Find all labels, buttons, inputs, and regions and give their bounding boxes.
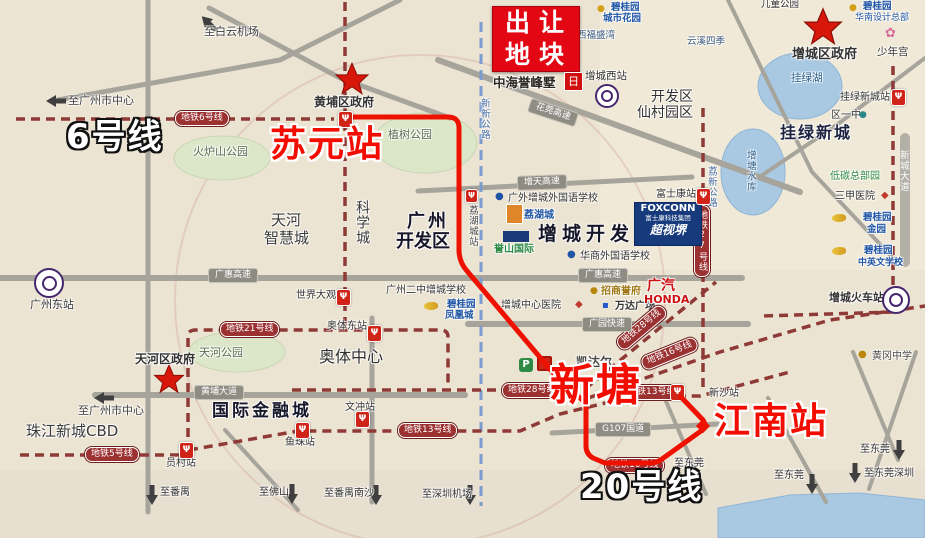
guangyuan-expwy-badge: 广园快速 bbox=[582, 317, 632, 332]
map-base-layer bbox=[0, 0, 925, 538]
dir-sz-airport: 至深圳机场 bbox=[422, 489, 472, 501]
bgy-design-label2: 华南设计总部 bbox=[855, 13, 909, 23]
xinxin-road-label: 新新公路 bbox=[478, 98, 489, 140]
bgy-design-label1: 碧桂园 bbox=[863, 2, 892, 13]
low-carbon-hq-label: 低碳总部园 bbox=[830, 171, 880, 183]
district-no1-school-icon: ● bbox=[859, 111, 867, 120]
xiancun-zone-label2: 仙村园区 bbox=[637, 105, 693, 121]
aoti-east-station-icon: Ψ bbox=[367, 325, 382, 342]
zengtang-reservoir-label: 增塘水库 bbox=[744, 150, 755, 192]
metro-line21-badge: 地铁21号线 bbox=[220, 322, 279, 337]
lihucheng-estate-icon bbox=[506, 204, 523, 224]
science-city-label: 科学城 bbox=[354, 200, 370, 245]
huanggang-school-icon: ● bbox=[858, 350, 867, 360]
zhaoshang-icon: ● bbox=[590, 287, 598, 296]
aoti-east-station-label: 奥体东站 bbox=[327, 321, 367, 333]
wanda-icon: ▪ bbox=[602, 301, 609, 311]
yushan-intl-label: 誉山国际 bbox=[494, 244, 534, 256]
dir-panyu-nansha: 至番禺南沙 bbox=[324, 488, 374, 500]
dir-gz-center-2: 至广州市中心 bbox=[78, 405, 144, 418]
xintang-annotation: 新塘 bbox=[550, 364, 642, 408]
guanghui-hwy-east-badge: 广惠高速 bbox=[578, 268, 628, 283]
intl-finance-city-label: 国际金融城 bbox=[212, 402, 312, 422]
tianhe-smart-city-label1: 天河 bbox=[271, 212, 301, 229]
foxconn-sub-label: 富士康科技集团 bbox=[635, 215, 701, 223]
huashang-school-icon: ● bbox=[567, 250, 576, 260]
worlds-fair-station-label: 世界大观 bbox=[296, 290, 336, 302]
youth-palace-label: 少年宫 bbox=[877, 46, 909, 58]
xinsha-station-icon: Ψ bbox=[670, 384, 685, 401]
huanggang-school-label: 黄冈中学 bbox=[872, 351, 912, 363]
tianhe-park-label: 天河公园 bbox=[199, 347, 243, 360]
parcel-brand-label: 中海誉峰墅 bbox=[493, 76, 556, 90]
line6-annotation: 6号线 bbox=[66, 120, 164, 154]
metro-line13-west-badge: 地铁13号线 bbox=[398, 423, 457, 438]
bgy-city-garden-icon: ● bbox=[597, 5, 605, 14]
bgy-jinyuan-label1: 碧桂园 bbox=[863, 213, 892, 224]
gualv-newtown-area-label: 挂绿新城 bbox=[780, 124, 852, 142]
yushan-intl-icon bbox=[503, 231, 529, 242]
gz-east-station-label: 广州东站 bbox=[30, 299, 74, 312]
zhishu-park-label: 植树公园 bbox=[388, 129, 432, 142]
xifu-label: 西福盛湾 bbox=[577, 31, 615, 42]
bgy-school-icon bbox=[832, 247, 846, 255]
bgy-phoenix-icon bbox=[424, 302, 438, 310]
dir-dongguan-2: 至东莞 bbox=[774, 470, 804, 482]
zhishu-park-area bbox=[373, 113, 477, 173]
huangpu-gov-label: 黄埔区政府 bbox=[314, 96, 374, 110]
gwaiw-school-label: 广外增城外国语学校 bbox=[508, 193, 598, 205]
bgy-jinyuan-label2: 金园 bbox=[867, 225, 886, 236]
bgy-design-icon: ● bbox=[849, 4, 857, 13]
zhonghai-logo-icon: 日 bbox=[564, 72, 583, 91]
jiangnan-station-annotation: 江南站 bbox=[714, 404, 828, 440]
dir-gz-center-1: 至广州市中心 bbox=[68, 95, 134, 108]
lihucheng-station-label: 荔湖城站 bbox=[466, 205, 477, 247]
zengcheng-west-station-label: 增城西站 bbox=[585, 70, 627, 82]
huolushan-park-label: 火炉山公园 bbox=[193, 146, 248, 159]
bgy-city-garden-label2: 城市花园 bbox=[603, 14, 641, 25]
gualv-lake-label: 挂绿湖 bbox=[791, 72, 823, 84]
g107-badge: G107国道 bbox=[595, 422, 651, 437]
gz-no2-school-label: 广州二中增城学校 bbox=[386, 285, 466, 297]
dir-dongguan-sz: 至东莞深圳 bbox=[864, 468, 914, 480]
yuzhu-station-icon: Ψ bbox=[295, 422, 310, 439]
yuancun-station-icon: Ψ bbox=[179, 442, 194, 459]
bgy-school-label1: 碧桂园 bbox=[864, 246, 893, 257]
zengcheng-west-station-icon bbox=[595, 84, 619, 108]
bgy-school-label2: 中英文学校 bbox=[858, 258, 903, 268]
zhujiang-cbd-label: 珠江新城CBD bbox=[26, 423, 118, 440]
zhaoshang-label: 招商誉府 bbox=[601, 286, 641, 298]
foxconn-station-icon: Ψ bbox=[696, 188, 711, 205]
zc-hospital-icon: ◆ bbox=[575, 300, 583, 310]
zc-hospital-label: 增城中心医院 bbox=[501, 300, 561, 312]
huangpu-ave-badge: 黄埔大道 bbox=[194, 385, 244, 400]
map-canvas: 地铁6号线 地铁21号线 地铁5号线 地铁13号线 地铁13号线 地铁28号线 … bbox=[0, 0, 925, 538]
foxconn-station-label: 富士康站 bbox=[656, 189, 696, 201]
parcel-line2: 地块 bbox=[499, 39, 579, 71]
gz-devzone-label1: 广州 bbox=[407, 212, 449, 233]
zengcheng-gov-label: 增城区政府 bbox=[792, 48, 857, 63]
lihucheng-estate-label: 荔湖城 bbox=[524, 210, 554, 222]
yunxi-siji-label: 云溪四季 bbox=[687, 37, 725, 48]
dir-panyu: 至番禺 bbox=[160, 487, 190, 499]
youth-palace-icon: ✿ bbox=[885, 27, 896, 40]
dir-foshan: 至佛山 bbox=[259, 487, 289, 499]
gualv-newtown-station-label: 挂绿新城站 bbox=[840, 92, 890, 104]
guanghui-hwy-west-badge: 广惠高速 bbox=[208, 268, 258, 283]
line20-annotation: 20号线 bbox=[580, 470, 703, 504]
yuancun-station-label: 员村站 bbox=[166, 458, 196, 470]
honda-label: HONDA bbox=[644, 294, 689, 307]
bgy-phoenix-label2: 凤凰城 bbox=[445, 311, 474, 322]
metro-line5-badge: 地铁5号线 bbox=[85, 447, 139, 462]
zengcheng-railway-station-label: 增城火车站 bbox=[829, 292, 884, 305]
foxconn-box: FOXCONN 富士康科技集团 超视堺 bbox=[634, 202, 702, 246]
zengcheng-railway-station-icon bbox=[882, 286, 910, 314]
parcel-for-sale-box: 出让 地块 bbox=[492, 6, 580, 72]
dir-baiyun-airport: 至白云机场 bbox=[204, 26, 259, 39]
district-no1-school-label: 区一中 bbox=[831, 110, 861, 122]
sanjia-hospital-label: 三甲医院 bbox=[835, 191, 875, 203]
lihucheng-station-icon: Ψ bbox=[465, 189, 478, 203]
bgy-jinyuan-icon bbox=[832, 214, 846, 222]
wenchong-station-icon: Ψ bbox=[355, 411, 370, 428]
parcel-line1: 出让 bbox=[499, 7, 579, 39]
chaoshijie-label: 超视堺 bbox=[635, 223, 701, 237]
zengtian-hwy-badge: 增天高速 bbox=[517, 174, 568, 191]
gz-east-station-icon bbox=[34, 268, 64, 298]
xiancun-zone-label1: 开发区 bbox=[651, 89, 693, 105]
xinsha-station-label: 新沙站 bbox=[709, 388, 739, 400]
tianhe-gov-label: 天河区政府 bbox=[135, 353, 195, 367]
sanjia-hospital-icon: ◆ bbox=[881, 191, 889, 201]
gwaiw-school-icon: ● bbox=[495, 192, 504, 202]
metro-line6-badge: 地铁6号线 bbox=[175, 111, 229, 126]
gualv-newtown-station-icon: Ψ bbox=[891, 89, 906, 106]
suyuan-station-annotation: 苏元站 bbox=[270, 127, 384, 163]
kaidar-p-icon: P bbox=[519, 358, 533, 372]
xincheng-ave-label: 新城大道 bbox=[897, 150, 908, 192]
dir-dongguan-3: 至东莞 bbox=[860, 444, 890, 456]
tianhe-smart-city-label2: 智慧城 bbox=[264, 230, 309, 247]
worlds-fair-station-icon: Ψ bbox=[336, 289, 351, 306]
children-park-label: 儿童公园 bbox=[761, 0, 799, 11]
aoti-center-label: 奥体中心 bbox=[319, 348, 383, 366]
gac-label: 广汽 bbox=[647, 278, 675, 294]
gz-devzone-label2: 开发区 bbox=[396, 232, 450, 253]
huashang-school-label: 华商外国语学校 bbox=[580, 251, 650, 263]
